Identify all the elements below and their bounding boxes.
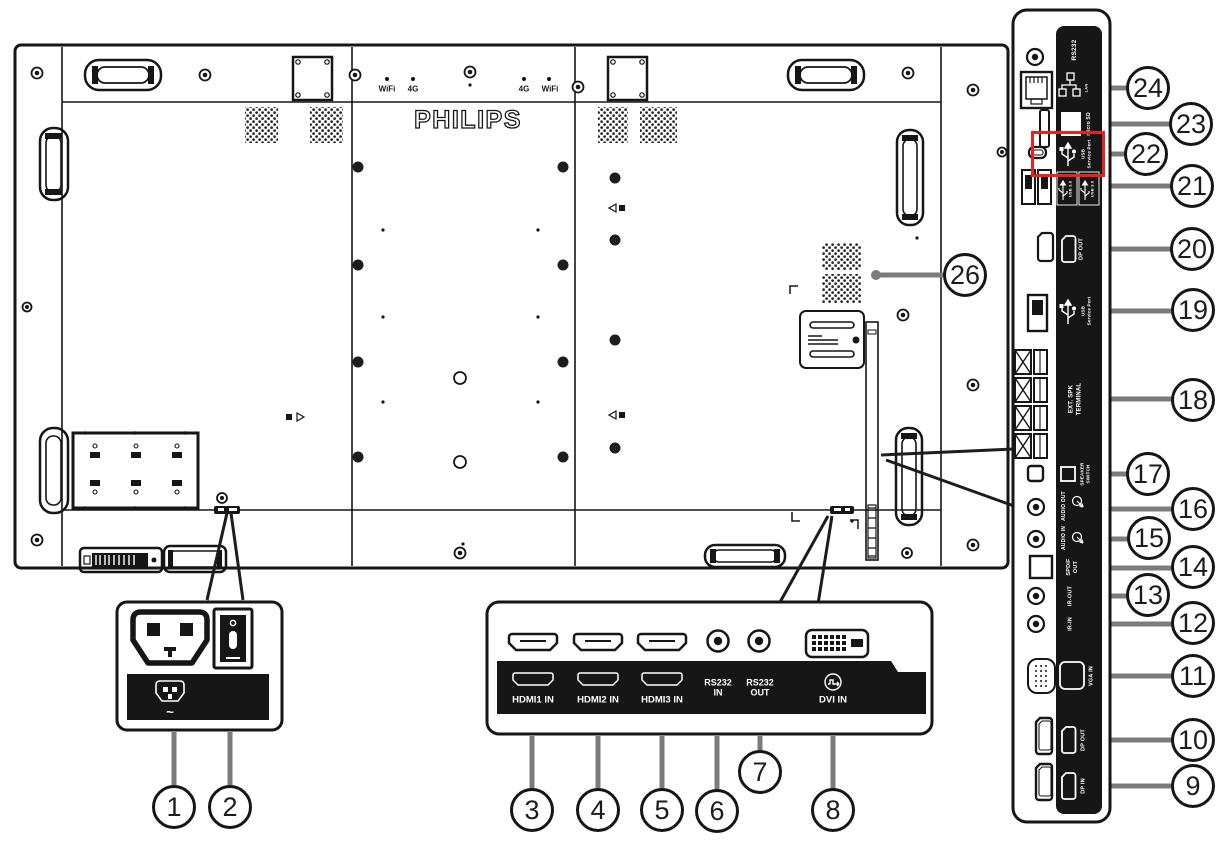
- callout-23: 23: [1169, 102, 1213, 146]
- ext-spk-terminal-label: EXT. SPK TERMINAL: [1069, 383, 1084, 416]
- vga-in-label: VGA IN: [1089, 666, 1096, 686]
- 4g-marking: 4G: [519, 85, 530, 94]
- usb-service-port-label: USB Service Port: [1080, 297, 1091, 326]
- wifi-marking: WiFi: [542, 85, 559, 94]
- rs232-out-label: RS232 OUT: [746, 678, 774, 699]
- callout-17: 17: [1126, 452, 1170, 496]
- callout-10: 10: [1171, 718, 1215, 762]
- ac-inlet-location: [214, 506, 240, 514]
- 4g-marking: 4G: [408, 85, 419, 94]
- callout-24: 24: [1126, 66, 1170, 110]
- callout-8: 8: [811, 788, 855, 832]
- callout-9: 9: [1171, 764, 1215, 808]
- audio-in-label: AUDIO IN: [1061, 526, 1067, 550]
- callout-7: 7: [738, 750, 782, 794]
- callout-21: 21: [1170, 164, 1214, 208]
- callout-11: 11: [1171, 654, 1215, 698]
- speaker-switch-label: SPEAKER SWITCH: [1079, 462, 1090, 485]
- callout-4: 4: [576, 788, 620, 832]
- callout-5: 5: [640, 788, 684, 832]
- dp-out-label: DP OUT: [1079, 238, 1086, 260]
- callout-20: 20: [1170, 227, 1214, 271]
- diagram-lineart: PHILIPS: [0, 0, 1229, 847]
- audio-out-label: AUDIO OUT: [1061, 491, 1067, 521]
- wifi-marking: WiFi: [379, 85, 396, 94]
- callout-15: 15: [1127, 516, 1171, 560]
- rs232-in-label: RS232 IN: [704, 678, 732, 699]
- dp-in-label: DP IN: [1081, 778, 1088, 794]
- callout-14: 14: [1171, 545, 1215, 589]
- rs232-label: RS232: [1071, 40, 1079, 61]
- callout-26: 26: [943, 253, 987, 297]
- callout-1: 1: [152, 785, 196, 829]
- usb-service-port-highlight: [1031, 131, 1105, 177]
- hdmi3-in-label: HDMI3 IN: [641, 696, 683, 707]
- hdmi1-in-label: HDMI1 IN: [512, 696, 554, 707]
- callout-6: 6: [695, 789, 739, 833]
- callout-18: 18: [1171, 378, 1215, 422]
- ir-in-label: IR-IN: [1068, 617, 1075, 631]
- callout-13: 13: [1126, 573, 1170, 617]
- usb30-label: USB 3.0: [1068, 181, 1073, 198]
- callout-2: 2: [208, 785, 252, 829]
- dp-out-label: DP OUT: [1081, 729, 1088, 751]
- bottom-ports-detail-box: [487, 602, 932, 734]
- hdmi2-in-label: HDMI2 IN: [577, 696, 619, 707]
- dvi-in-label: DVI IN: [819, 696, 847, 707]
- spdif-out-label: SPDIF OUT: [1066, 558, 1080, 575]
- lan-label: LAN: [1084, 84, 1089, 93]
- usb30-label: USB 3.0: [1090, 181, 1095, 198]
- callout-22: 22: [1124, 132, 1168, 176]
- brand-logo: PHILIPS: [414, 106, 522, 134]
- callout-16: 16: [1171, 487, 1215, 531]
- rear-connectivity-diagram: PHILIPS: [0, 0, 1229, 847]
- power-detail-box: [117, 602, 282, 730]
- callout-19: 19: [1171, 288, 1215, 332]
- callout-12: 12: [1171, 601, 1215, 645]
- bottom-ports-location: [830, 506, 854, 514]
- ir-out-label: IR-OUT: [1068, 586, 1075, 606]
- callout-3: 3: [510, 788, 554, 832]
- ac-symbol: ~: [166, 705, 174, 720]
